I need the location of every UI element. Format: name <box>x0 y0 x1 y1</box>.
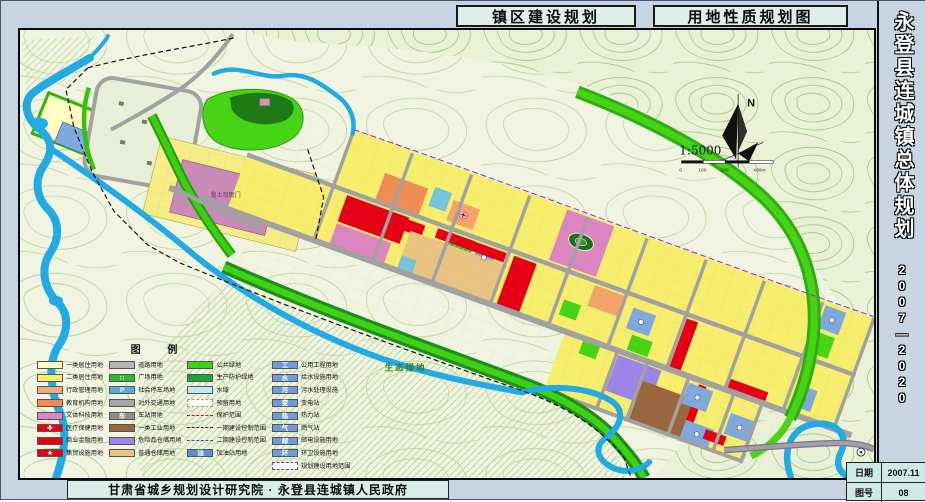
site-label: 鲁土司衙门 <box>211 191 241 199</box>
map-canvas: 生态绿地 鲁土司衙门 N 1:5000 0 100 200 400m <box>20 30 874 478</box>
date-label: 日期 <box>847 463 882 482</box>
plan-period-vertical: 2007—2020 <box>895 263 909 407</box>
date-value: 2007.11 <box>882 463 925 482</box>
series-title: 镇区建设规划 <box>492 6 600 27</box>
sheet-row: 图号 08 <box>847 483 925 502</box>
sheet-label: 图号 <box>847 483 882 502</box>
plan-sheet: 镇区建设规划 用地性质规划图 <box>0 0 925 500</box>
scale-tick: 0 <box>679 167 682 173</box>
plan-title-vertical: 永登县连城镇总体规划 <box>888 11 917 241</box>
map-frame: 生态绿地 鲁土司衙门 N 1:5000 0 100 200 400m <box>18 28 876 480</box>
scale-tick: 200 <box>720 167 729 173</box>
date-row: 日期 2007.11 <box>847 463 925 483</box>
scale-tick: 100 <box>698 167 707 173</box>
sheet-title: 用地性质规划图 <box>687 6 813 27</box>
scale-tick: 400m <box>753 167 765 173</box>
title-block-table: 日期 2007.11 图号 08 <box>846 462 925 501</box>
corner-marker-icon <box>857 448 865 456</box>
sidebar: 永登县连城镇总体规划 2007—2020 <box>877 1 925 501</box>
north-label: N <box>747 98 755 110</box>
sheet-title-box: 用地性质规划图 <box>653 5 848 27</box>
sheet-value: 08 <box>882 483 925 502</box>
scale-text: 1:5000 <box>679 143 721 157</box>
credit-text: 甘肃省城乡规划设计研究院 · 永登县连城镇人民政府 <box>108 481 408 498</box>
series-title-box: 镇区建设规划 <box>456 5 636 27</box>
credit-box: 甘肃省城乡规划设计研究院 · 永登县连城镇人民政府 <box>67 480 449 499</box>
eco-label: 生态绿地 <box>385 362 427 372</box>
